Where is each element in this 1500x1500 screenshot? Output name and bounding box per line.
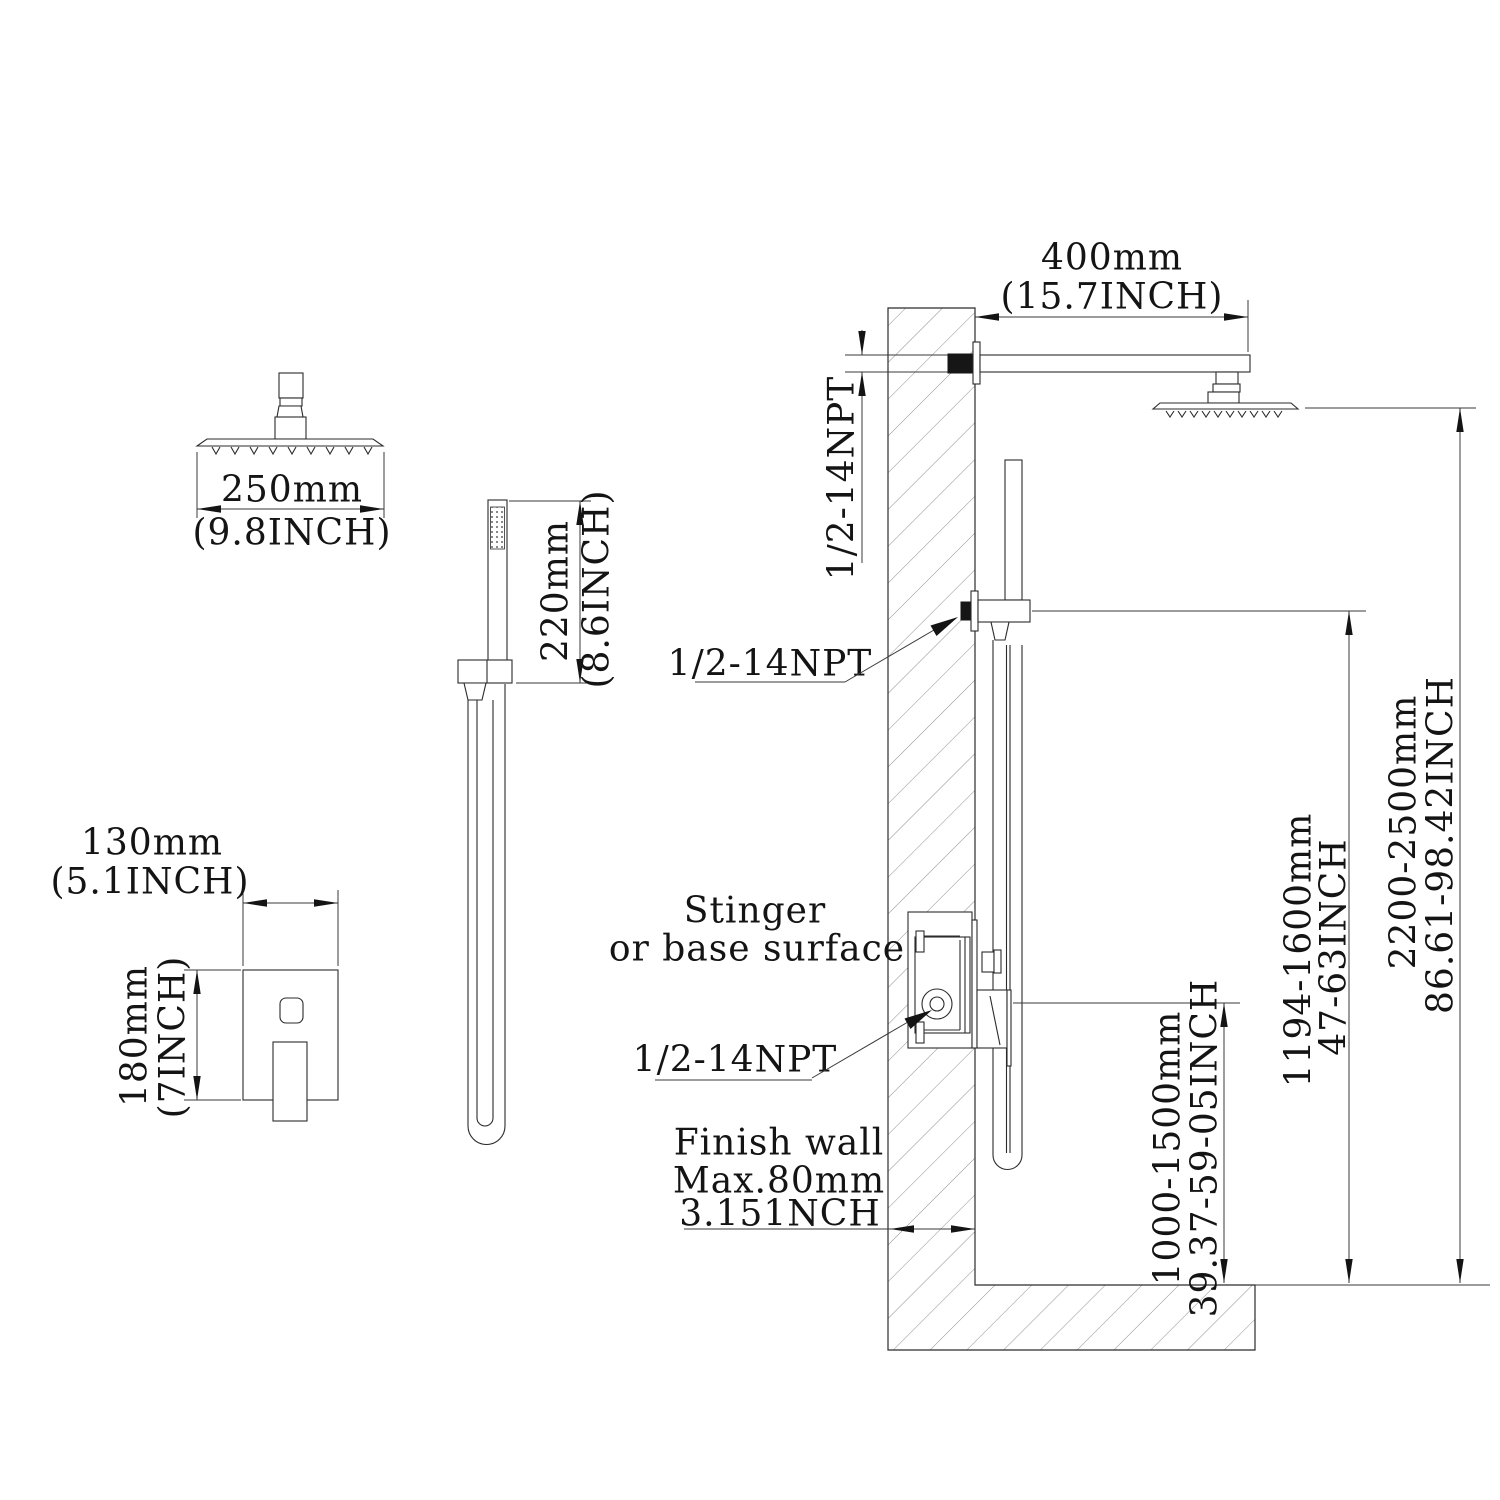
shower-installation-diagram: 250mm (9.8INCH) 220mm (8.6INCH) 130mm (5… xyxy=(0,0,1500,1500)
dim-label-9-8inch: (9.8INCH) xyxy=(192,513,391,554)
hose-connector xyxy=(464,683,486,700)
label-valve-thread: 1/2-14NPT xyxy=(633,1040,838,1081)
valve-bracket-bottom xyxy=(916,1022,924,1043)
hose-outer-loop xyxy=(468,684,505,1145)
technical-drawing-page: 250mm (9.8INCH) 220mm (8.6INCH) 130mm (5… xyxy=(0,0,1500,1500)
valve-inlet-port-inner xyxy=(930,997,944,1011)
dim-label-1000-1500mm: 1000-1500mm xyxy=(1148,1011,1189,1286)
valve-front-view: 130mm (5.1INCH) 180mm (7INCH) xyxy=(50,823,338,1122)
valve-handle-hub-side xyxy=(977,990,1007,1048)
showerhead-nozzles xyxy=(212,447,372,454)
handshower-front-view: 220mm (8.6INCH) xyxy=(458,489,618,1144)
handshower-sprayface xyxy=(491,507,505,549)
head-connector-mid xyxy=(1213,384,1240,392)
dim-label-180mm: 180mm xyxy=(115,965,156,1107)
handshower-holder xyxy=(458,660,512,683)
showerhead-front-view: 250mm (9.8INCH) xyxy=(192,373,391,554)
outlet-wall-flange xyxy=(971,591,978,631)
diverter-knob-cap xyxy=(994,950,1001,973)
showerhead-stem-base xyxy=(275,417,306,439)
showerhead-plate xyxy=(197,439,383,446)
handshower-wand-side xyxy=(1005,460,1022,600)
annotation-valve-thread: 1/2-14NPT xyxy=(633,1010,932,1081)
hose-inner-loop xyxy=(477,700,493,1126)
label-finish-wall: Finish wall xyxy=(674,1123,885,1164)
handshower-holder-side xyxy=(978,600,1030,622)
dim-label-5-1inch: (5.1INCH) xyxy=(50,862,249,903)
arm-npt-thread xyxy=(948,354,973,373)
dim-label-39-59inch: 39.37-59-05INCH xyxy=(1185,979,1226,1318)
hose-outer-side xyxy=(993,640,1022,1170)
showerhead-stem-taper xyxy=(277,406,303,417)
dim-label-47-63inch: 47-63INCH xyxy=(1314,838,1355,1055)
dim-label-86-98inch: 86.61-98.42INCH xyxy=(1421,676,1462,1014)
showerhead-stem-band xyxy=(280,398,302,406)
label-outlet-thread: 1/2-14NPT xyxy=(668,644,873,685)
dim-label-400mm: 400mm xyxy=(1041,238,1183,279)
showerhead-nozzles-side xyxy=(1166,411,1282,417)
valve-bracket-top xyxy=(916,931,924,952)
valve-trim-plate-side xyxy=(972,920,977,1048)
head-connector-base xyxy=(1208,392,1239,403)
label-3-15inch: 3.151NCH xyxy=(679,1194,881,1235)
note-base-surface: or base surface xyxy=(609,929,905,970)
outlet-npt-thread xyxy=(961,602,972,620)
label-arm-thread: 1/2-14NPT xyxy=(822,376,863,581)
valve-side-view xyxy=(908,912,1011,1066)
dim-label-130mm: 130mm xyxy=(81,823,223,864)
shower-arm xyxy=(980,355,1250,372)
dim-label-220mm: 220mm xyxy=(536,520,577,662)
dim-label-250mm: 250mm xyxy=(221,470,363,511)
showerhead-plate-side xyxy=(1153,403,1298,409)
note-stinger: Stinger xyxy=(684,891,826,932)
valve-handle-lever-side xyxy=(1007,990,1011,1066)
valve-handle xyxy=(273,1042,307,1121)
head-connector-top xyxy=(1216,372,1238,384)
dimension-arm-length: 400mm (15.7INCH) xyxy=(975,238,1248,353)
diverter-knob-side xyxy=(982,952,994,972)
annotation-wall-note: Stinger or base surface xyxy=(609,891,905,970)
showerhead-stem-top xyxy=(279,373,303,398)
dimension-valve-height: 1000-1500mm 39.37-59-05INCH xyxy=(1013,979,1240,1318)
dim-label-2200-2500mm: 2200-2500mm xyxy=(1384,695,1425,970)
hose-connector-side xyxy=(991,622,1009,640)
dim-label-15-7inch: (15.7INCH) xyxy=(1001,277,1224,318)
showerhead-side-view xyxy=(1153,372,1298,417)
arm-wall-flange xyxy=(973,342,980,384)
dim-label-7inch: (7INCH) xyxy=(153,956,194,1119)
annotation-arm-thread: 1/2-14NPT xyxy=(822,330,863,580)
dim-label-8-6inch: (8.6INCH) xyxy=(577,489,618,688)
